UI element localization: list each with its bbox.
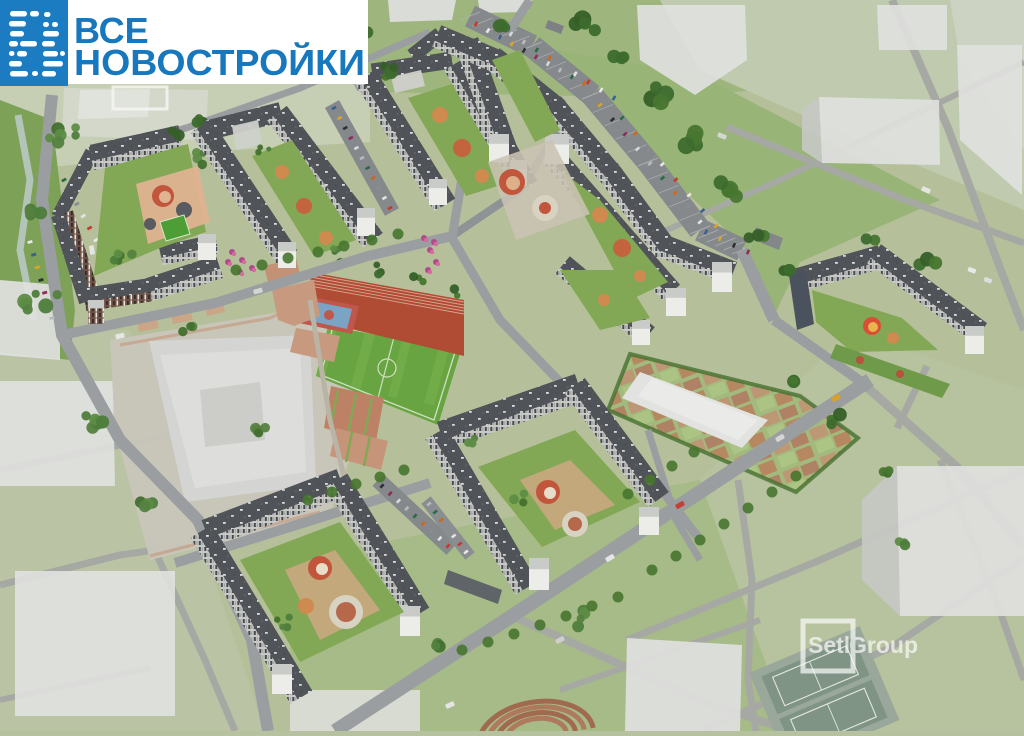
svg-text:Setl: Setl xyxy=(808,632,850,658)
svg-text:НОВОСТРОЙКИ: НОВОСТРОЙКИ xyxy=(74,41,365,83)
svg-text:Group: Group xyxy=(849,632,918,658)
